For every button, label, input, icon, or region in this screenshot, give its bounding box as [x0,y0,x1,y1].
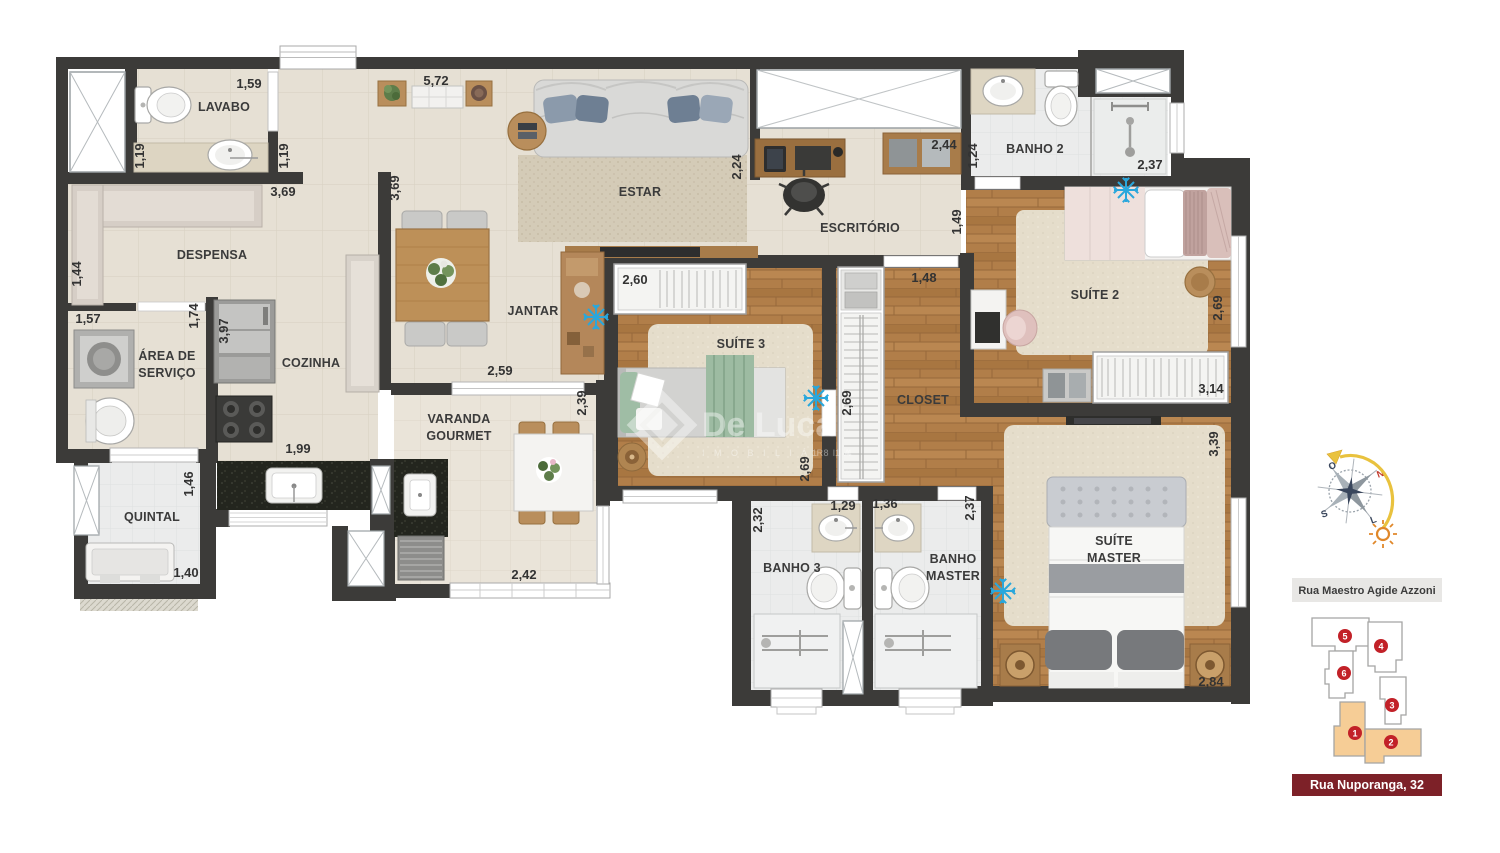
svg-text:1: 1 [1352,729,1357,739]
svg-text:1,57: 1,57 [75,311,100,326]
svg-text:1,74: 1,74 [186,303,201,329]
svg-text:3,97: 3,97 [216,318,231,343]
svg-text:1,46: 1,46 [181,471,196,496]
svg-text:2,37: 2,37 [962,495,977,520]
svg-text:1,49: 1,49 [949,209,964,234]
svg-text:ESCRITÓRIO: ESCRITÓRIO [820,220,900,235]
svg-text:2,39: 2,39 [574,390,589,415]
svg-text:1,40: 1,40 [173,565,198,580]
svg-text:Rua Maestro Agide Azzoni: Rua Maestro Agide Azzoni [1298,585,1435,597]
svg-text:ÁREA DE: ÁREA DE [138,348,195,363]
svg-text:QUINTAL: QUINTAL [124,510,180,524]
svg-text:1,59: 1,59 [236,76,261,91]
svg-text:SERVIÇO: SERVIÇO [138,366,196,380]
svg-text:5: 5 [1342,632,1347,642]
svg-text:GOURMET: GOURMET [426,429,491,443]
svg-text:5,72: 5,72 [423,73,448,88]
svg-text:1,19: 1,19 [276,143,291,168]
svg-text:BANHO 3: BANHO 3 [763,561,821,575]
svg-text:DESPENSA: DESPENSA [177,248,247,262]
svg-text:1 8 1 4: 1 8 1 4 [812,448,854,458]
svg-text:BANHO: BANHO [930,552,977,566]
svg-text:3: 3 [1389,701,1394,711]
svg-text:1,99: 1,99 [285,441,310,456]
svg-text:LAVABO: LAVABO [198,100,250,114]
svg-text:Rua Nuporanga, 32: Rua Nuporanga, 32 [1310,778,1424,792]
svg-text:JANTAR: JANTAR [508,304,559,318]
svg-text:3,39: 3,39 [1206,431,1221,456]
svg-text:3,14: 3,14 [1198,381,1224,396]
svg-text:2: 2 [1388,738,1393,748]
svg-text:6: 6 [1341,669,1346,679]
svg-text:COZINHA: COZINHA [282,356,340,370]
svg-text:2,69: 2,69 [797,456,812,481]
svg-text:2,42: 2,42 [511,567,536,582]
svg-text:2,59: 2,59 [487,363,512,378]
svg-text:3,69: 3,69 [270,184,295,199]
svg-text:1,48: 1,48 [911,270,936,285]
svg-text:2,44: 2,44 [931,137,957,152]
svg-text:2,84: 2,84 [1198,674,1224,689]
svg-text:2,60: 2,60 [622,272,647,287]
svg-text:De Luca: De Luca [702,406,835,444]
svg-text:2,37: 2,37 [1137,157,1162,172]
svg-text:3,69: 3,69 [387,175,402,200]
svg-text:1,36: 1,36 [872,496,897,511]
svg-text:ESTAR: ESTAR [619,185,661,199]
svg-text:2,69: 2,69 [839,390,854,415]
svg-text:SUÍTE 3: SUÍTE 3 [717,336,766,351]
svg-text:4: 4 [1378,642,1383,652]
svg-text:BANHO 2: BANHO 2 [1006,142,1064,156]
svg-text:1,19: 1,19 [132,143,147,168]
svg-text:SUÍTE 2: SUÍTE 2 [1071,287,1120,302]
svg-text:SUÍTE: SUÍTE [1095,533,1133,548]
svg-text:2,24: 2,24 [729,154,744,180]
svg-text:MASTER: MASTER [1087,551,1141,565]
svg-text:CLOSET: CLOSET [897,393,949,407]
svg-text:2,32: 2,32 [750,507,765,532]
svg-text:1,24: 1,24 [965,143,980,169]
svg-text:MASTER: MASTER [926,569,980,583]
svg-text:2,69: 2,69 [1210,295,1225,320]
svg-text:1,44: 1,44 [69,261,84,287]
svg-text:VARANDA: VARANDA [428,412,491,426]
svg-text:1,29: 1,29 [830,498,855,513]
